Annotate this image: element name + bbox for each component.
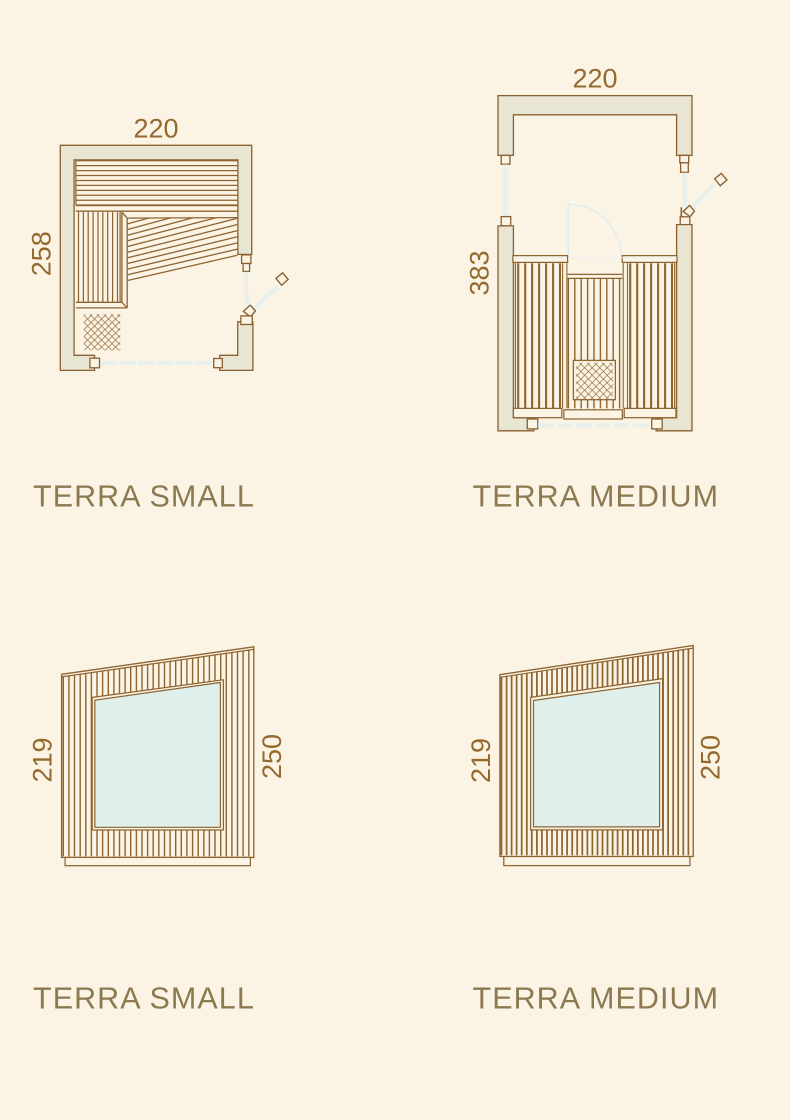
svg-text:219: 219 bbox=[466, 738, 496, 783]
svg-text:383: 383 bbox=[465, 250, 495, 295]
svg-text:TERRA MEDIUM: TERRA MEDIUM bbox=[473, 480, 720, 514]
svg-text:219: 219 bbox=[28, 737, 58, 782]
svg-text:220: 220 bbox=[572, 64, 617, 94]
svg-text:TERRA MEDIUM: TERRA MEDIUM bbox=[473, 982, 720, 1016]
svg-text:220: 220 bbox=[133, 114, 178, 144]
svg-text:250: 250 bbox=[257, 734, 287, 779]
svg-text:250: 250 bbox=[695, 735, 725, 780]
svg-text:TERRA SMALL: TERRA SMALL bbox=[33, 982, 255, 1016]
svg-text:258: 258 bbox=[27, 231, 57, 276]
svg-text:TERRA SMALL: TERRA SMALL bbox=[33, 480, 255, 514]
